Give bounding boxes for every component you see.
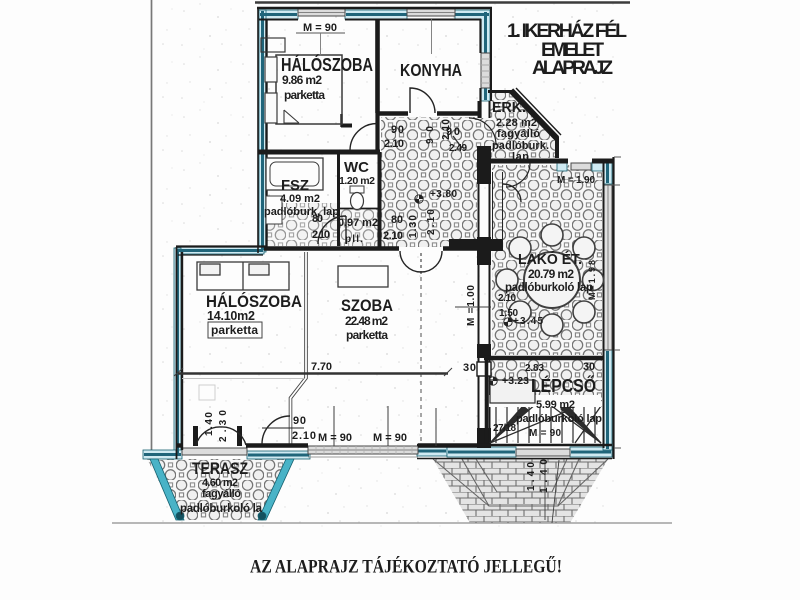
svg-text:HÁLÓSZOBA: HÁLÓSZOBA bbox=[281, 54, 373, 75]
svg-text:padlóburkoló lap: padlóburkoló lap bbox=[505, 282, 593, 294]
svg-text:0.97 m2: 0.97 m2 bbox=[338, 217, 378, 229]
svg-text:1.40: 1.40 bbox=[539, 459, 550, 493]
svg-text:ERK.: ERK. bbox=[492, 99, 526, 116]
svg-text:2.10: 2.10 bbox=[426, 209, 437, 235]
svg-text:parketta: parketta bbox=[346, 328, 388, 342]
svg-text:M=1.98: M=1.98 bbox=[587, 260, 597, 300]
svg-text:fagyálló: fagyálló bbox=[202, 488, 241, 500]
svg-text:9.86 m2: 9.86 m2 bbox=[282, 73, 322, 87]
svg-text:+3.23: +3.23 bbox=[502, 375, 529, 387]
svg-text:M = 90: M = 90 bbox=[303, 22, 337, 34]
svg-text:parketta: parketta bbox=[211, 323, 258, 337]
svg-text:M =1.00: M =1.00 bbox=[466, 285, 477, 326]
svg-text:LÉPCSŐ: LÉPCSŐ bbox=[531, 375, 596, 396]
svg-text:2.10: 2.10 bbox=[292, 430, 316, 442]
svg-text:M = 90: M = 90 bbox=[318, 432, 352, 444]
svg-text:lap: lap bbox=[512, 151, 529, 163]
svg-text:WC: WC bbox=[344, 159, 369, 176]
svg-text:2.30: 2.30 bbox=[218, 410, 229, 442]
svg-text:1.20 m2: 1.20 m2 bbox=[339, 175, 375, 187]
svg-text:7.70: 7.70 bbox=[311, 361, 332, 373]
svg-text:fagyálló: fagyálló bbox=[497, 128, 540, 140]
svg-text:2.10: 2.10 bbox=[441, 119, 452, 140]
svg-text:14.10m2: 14.10m2 bbox=[207, 309, 255, 323]
svg-text:2.10: 2.10 bbox=[384, 138, 404, 150]
svg-text:parketta: parketta bbox=[284, 88, 325, 102]
svg-text:1.30: 1.30 bbox=[408, 215, 419, 238]
svg-text:80: 80 bbox=[312, 213, 323, 225]
svg-text:FSZ: FSZ bbox=[281, 177, 309, 194]
svg-text:padlóburkoló la: padlóburkoló la bbox=[180, 503, 263, 515]
svg-text:padlóburkoló lap: padlóburkoló lap bbox=[516, 413, 602, 425]
svg-text:SZOBA: SZOBA bbox=[341, 297, 393, 315]
svg-text:padlóburk. lap: padlóburk. lap bbox=[264, 206, 339, 218]
svg-text:2.83: 2.83 bbox=[525, 363, 544, 374]
svg-text:30: 30 bbox=[463, 362, 476, 374]
svg-text:M = 90: M = 90 bbox=[529, 428, 561, 439]
svg-text:LAKÓ ÉT.: LAKÓ ÉT. bbox=[518, 250, 582, 268]
svg-text:90: 90 bbox=[293, 415, 306, 427]
svg-text:KONYHA: KONYHA bbox=[400, 60, 462, 80]
svg-text:2.10: 2.10 bbox=[312, 229, 330, 241]
svg-text:30: 30 bbox=[583, 361, 595, 373]
svg-text:M = 1.90: M = 1.90 bbox=[557, 175, 595, 186]
svg-text:TERASZ: TERASZ bbox=[192, 460, 248, 478]
svg-text:27/18: 27/18 bbox=[493, 423, 516, 434]
svg-text:4.09 m2: 4.09 m2 bbox=[280, 193, 320, 205]
svg-text:2.10: 2.10 bbox=[498, 293, 516, 304]
svg-text:22.48 m2: 22.48 m2 bbox=[345, 314, 388, 328]
svg-text:M = 90: M = 90 bbox=[373, 432, 407, 444]
svg-text:80: 80 bbox=[391, 214, 403, 226]
svg-text:ALAPRAJZ: ALAPRAJZ bbox=[532, 57, 613, 79]
svg-text:1.40: 1.40 bbox=[526, 462, 537, 491]
svg-text:90: 90 bbox=[391, 124, 404, 136]
svg-text:2.10: 2.10 bbox=[383, 230, 403, 242]
svg-text:20.79 m2: 20.79 m2 bbox=[528, 267, 574, 281]
svg-text:5.99 m2: 5.99 m2 bbox=[536, 399, 575, 411]
svg-text:+3.45: +3.45 bbox=[513, 316, 543, 327]
svg-text:+3.80: +3.80 bbox=[430, 189, 457, 200]
svg-text:pll.: pll. bbox=[345, 234, 363, 245]
svg-text:1.40: 1.40 bbox=[204, 412, 215, 436]
svg-text:AZ ALAPRAJZ TÁJÉKOZTATÓ JELLEG: AZ ALAPRAJZ TÁJÉKOZTATÓ JELLEGŰ! bbox=[250, 556, 562, 578]
svg-text:2.49: 2.49 bbox=[449, 143, 467, 154]
